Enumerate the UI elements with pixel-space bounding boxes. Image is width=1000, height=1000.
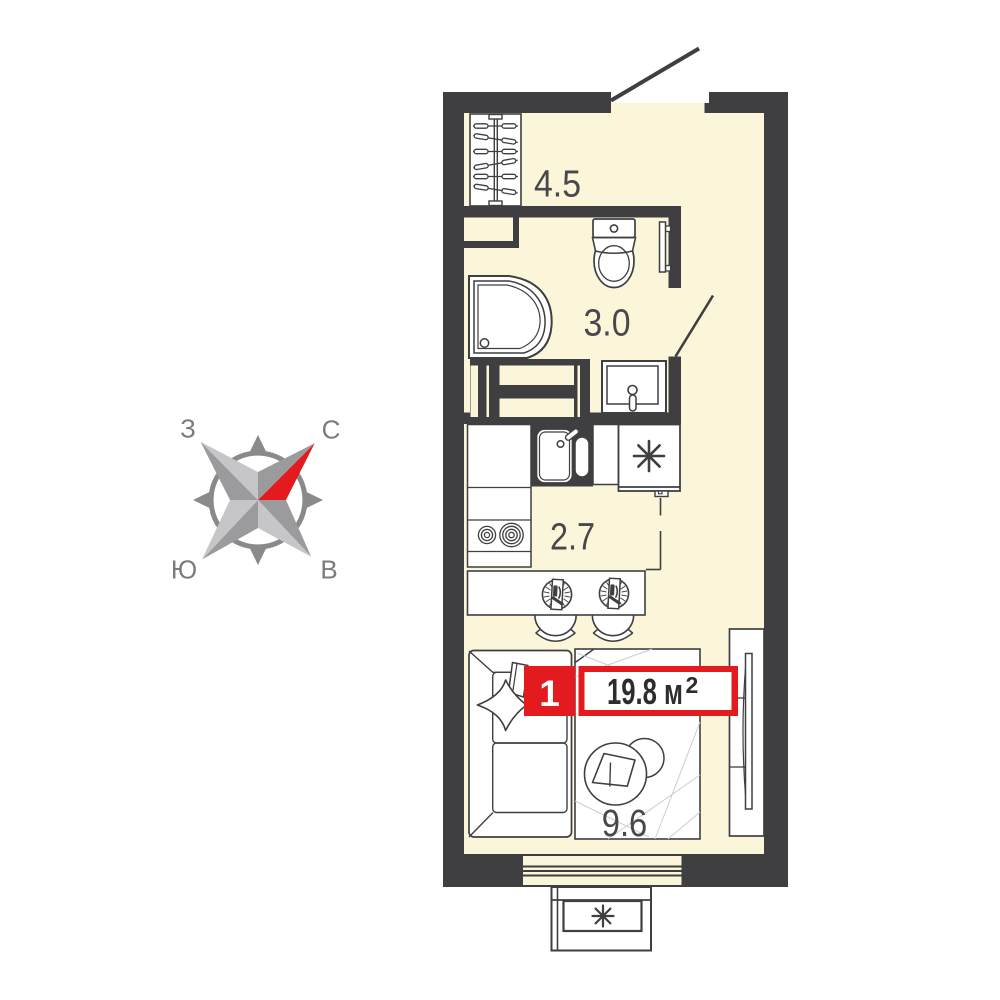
svg-text:В: В [320,555,337,585]
svg-text:9.6: 9.6 [602,803,648,845]
svg-text:Ю: Ю [171,555,197,585]
svg-text:1: 1 [539,673,560,714]
svg-text:3.0: 3.0 [584,303,631,345]
svg-text:С: С [322,415,341,445]
svg-text:19.8 м: 19.8 м [607,671,683,712]
svg-text:2: 2 [686,672,699,698]
svg-text:З: З [180,414,196,444]
svg-text:2.7: 2.7 [550,517,595,559]
svg-text:4.5: 4.5 [534,164,581,206]
